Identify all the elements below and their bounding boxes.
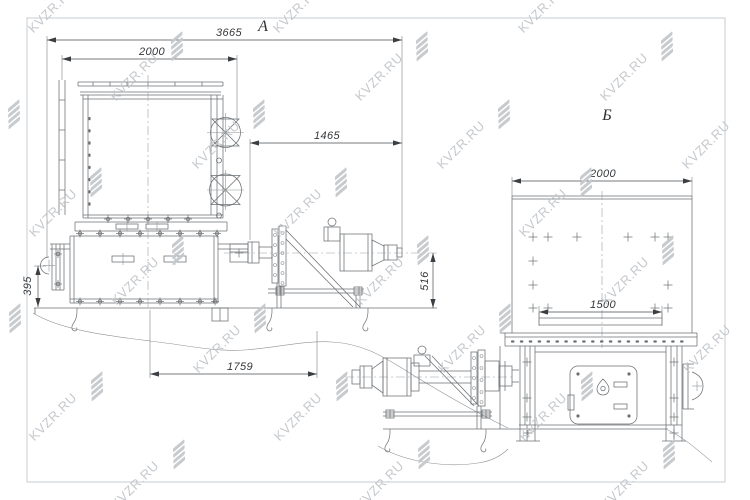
drawing-sheet: KVZR.RU (0, 0, 750, 500)
drive-assembly-a (248, 218, 402, 307)
dimension-395: 395 (22, 266, 46, 307)
dimension-1465: 1465 (250, 130, 402, 240)
dim-text-2000-b: 2000 (589, 168, 617, 180)
view-a-label: А (257, 18, 268, 35)
drive-assembly-b (352, 346, 519, 429)
dimension-1500: 1500 (539, 299, 662, 326)
dim-text-516: 516 (419, 271, 431, 291)
door-handle (597, 379, 609, 395)
left-bracket (41, 244, 70, 290)
dim-text-1465: 1465 (314, 130, 341, 142)
engineering-drawing: KVZR.RU (0, 0, 750, 500)
access-door (568, 366, 637, 424)
view-b-drawing: 2000 1500 Б (345, 107, 712, 465)
dim-text-1759: 1759 (227, 361, 253, 373)
ground-break-line (33, 313, 508, 428)
dim-text-3665: 3665 (216, 27, 243, 39)
coupling-bowtie-bottom (207, 170, 244, 210)
view-b-label: Б (601, 107, 612, 124)
dim-text-395: 395 (22, 276, 34, 296)
